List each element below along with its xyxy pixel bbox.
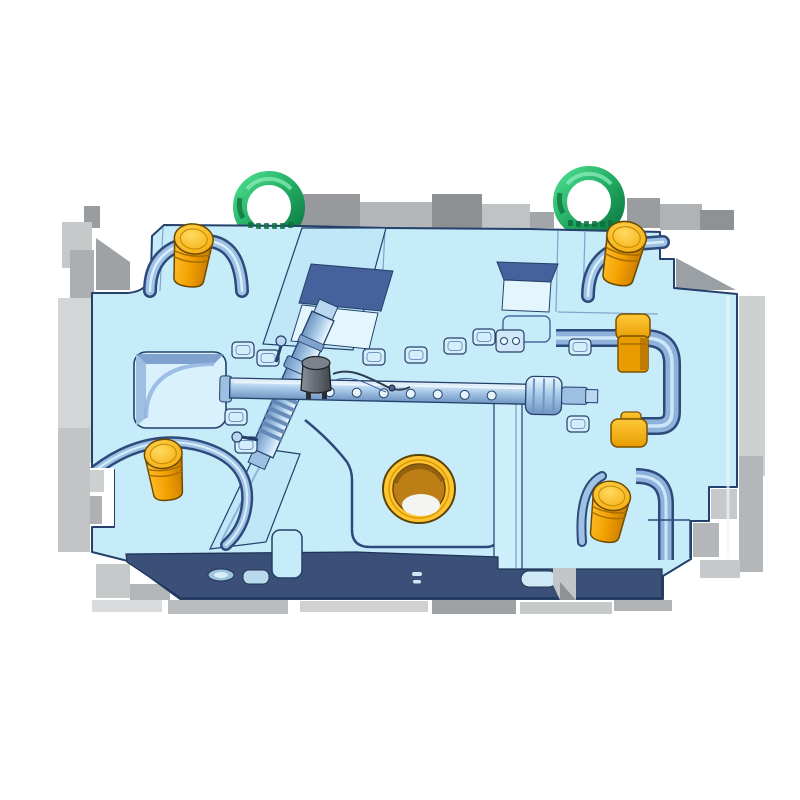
band-slot-right bbox=[521, 571, 557, 587]
side-lock-upper bbox=[616, 314, 650, 372]
sprue-bushing bbox=[383, 455, 455, 523]
ejector-rail bbox=[494, 398, 522, 570]
bottom-tab bbox=[272, 530, 302, 578]
left-notch bbox=[90, 468, 114, 526]
band-slot-left bbox=[243, 570, 269, 584]
left-pocket bbox=[134, 352, 226, 428]
mold-render: 3D CAD render of an injection mold base … bbox=[0, 0, 800, 800]
cad-viewport: 3D CAD render of an injection mold base … bbox=[0, 0, 800, 800]
mount-bracket bbox=[496, 330, 524, 352]
